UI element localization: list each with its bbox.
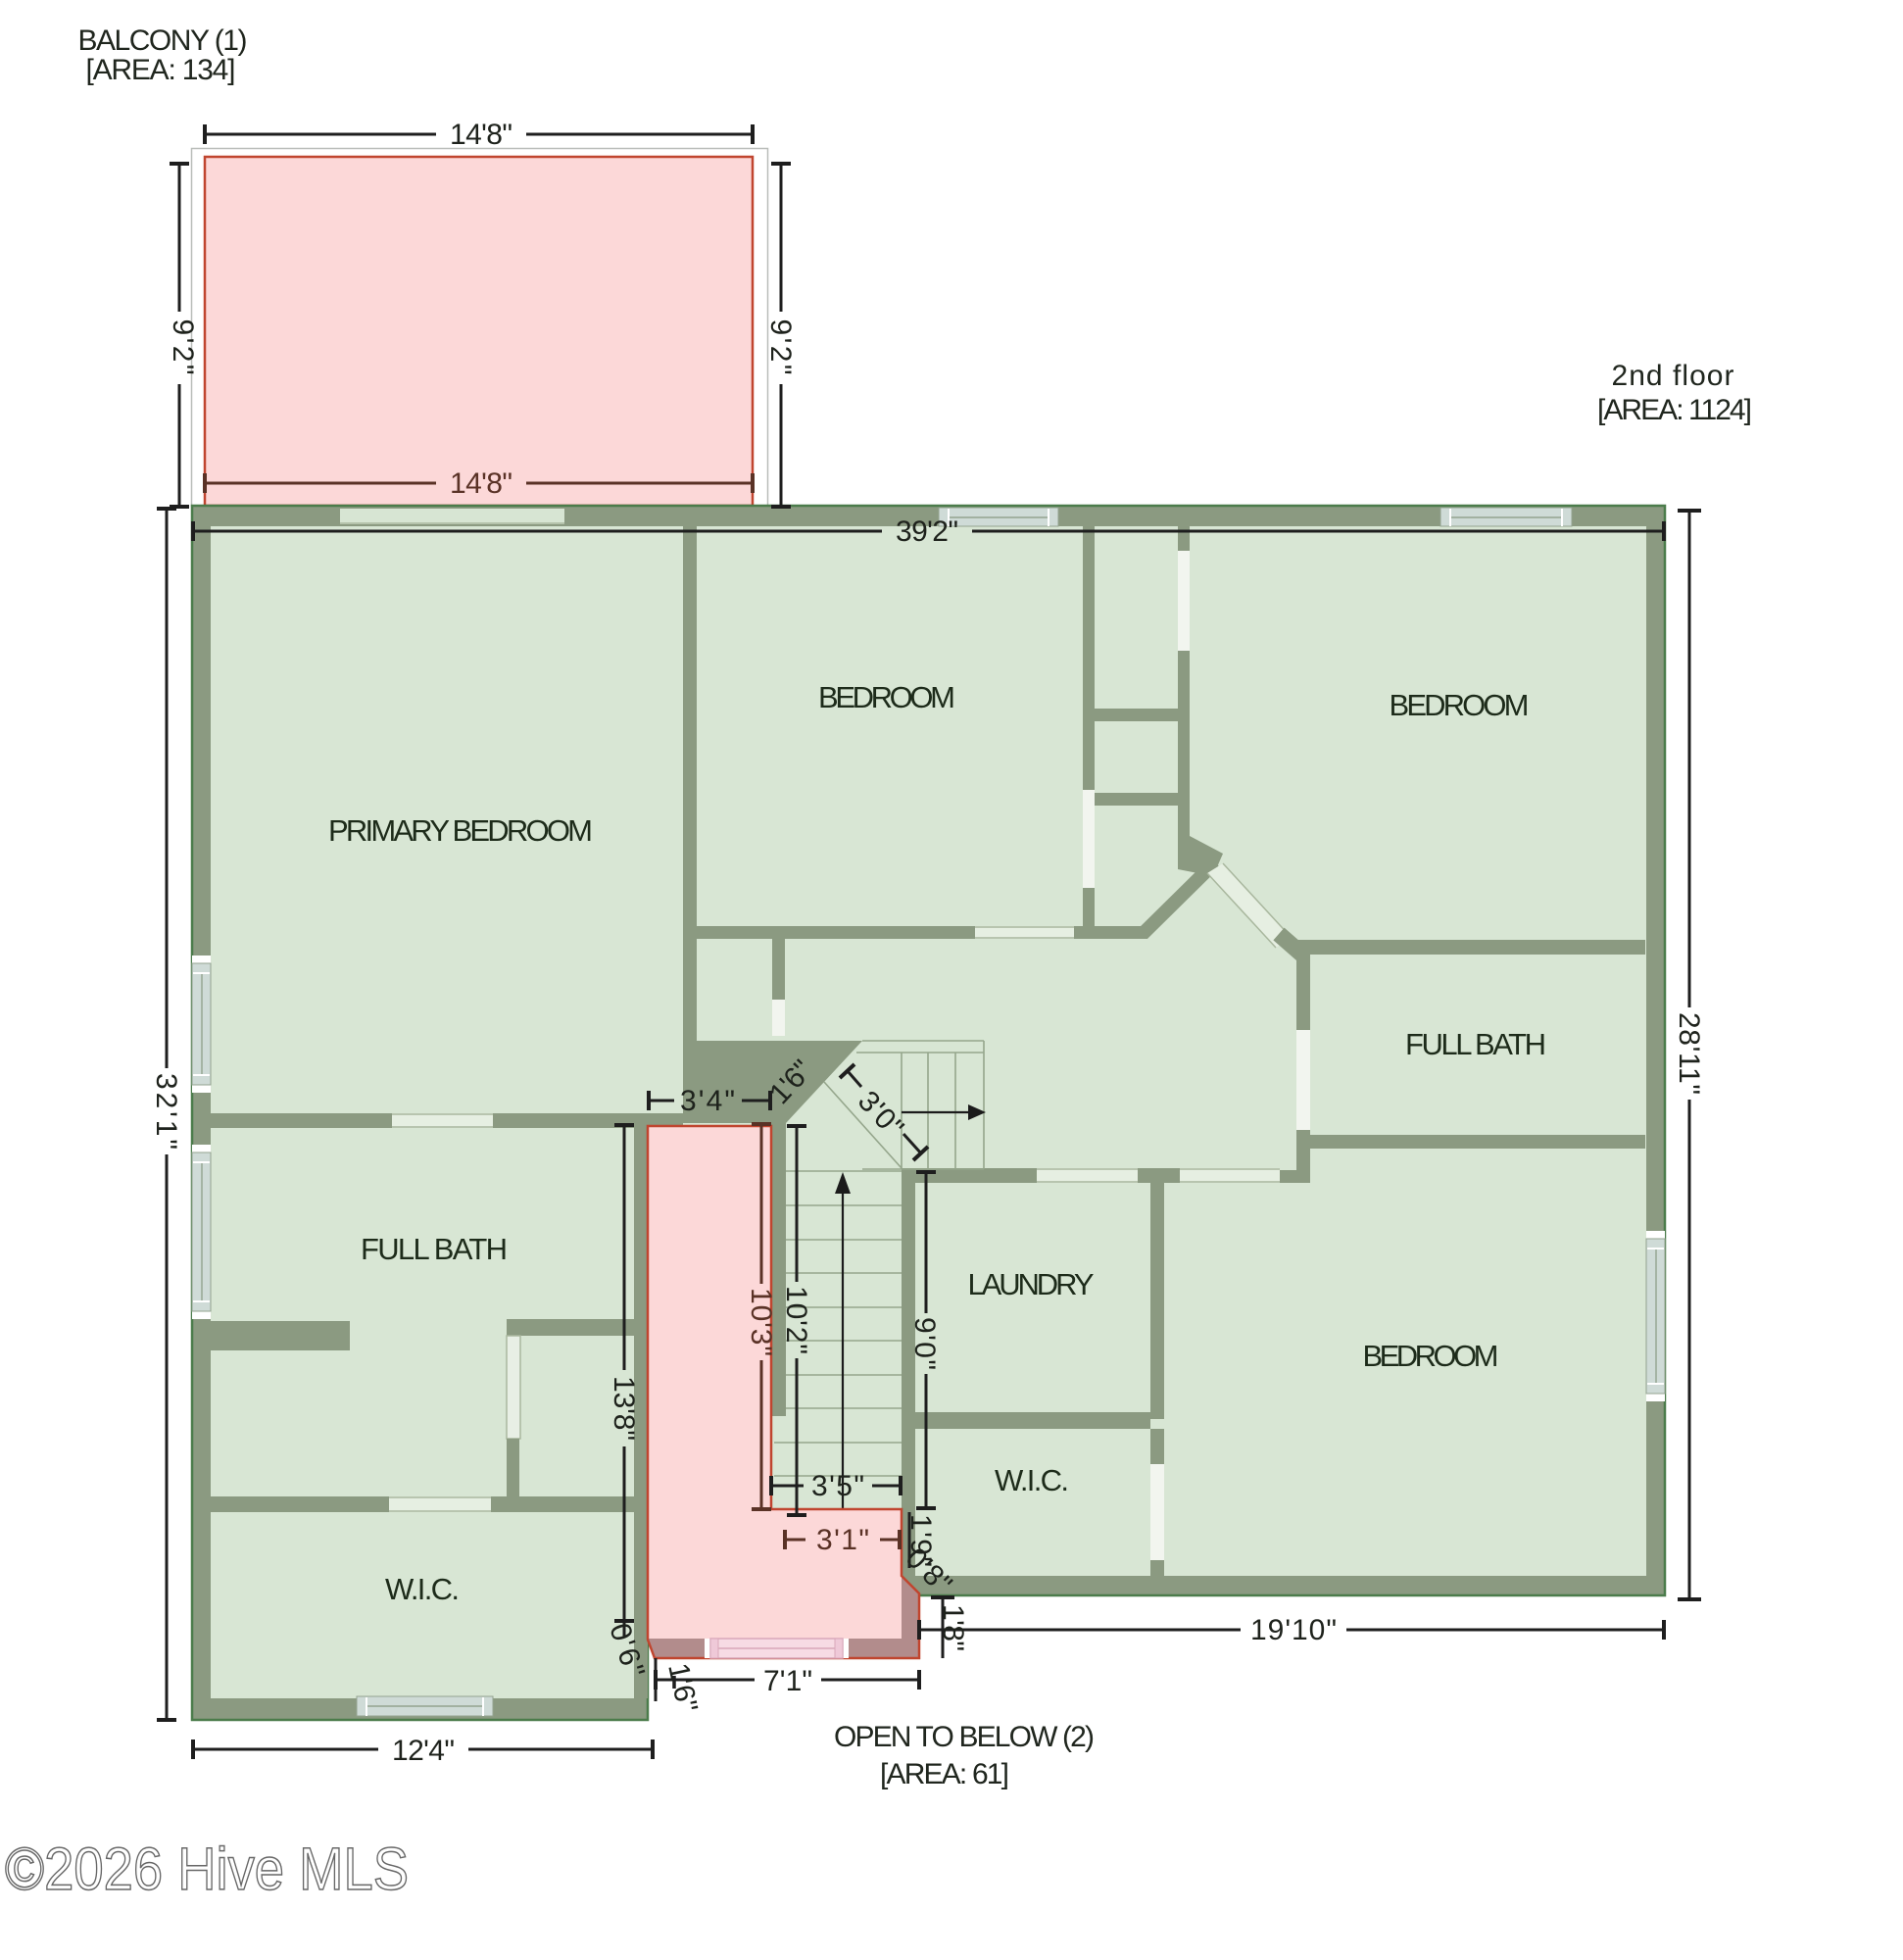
- svg-text:9'2": 9'2": [764, 319, 797, 375]
- svg-text:13'8": 13'8": [608, 1376, 640, 1441]
- svg-text:BEDROOM: BEDROOM: [1363, 1339, 1499, 1373]
- svg-text:FULL BATH: FULL BATH: [1405, 1027, 1546, 1061]
- svg-text:BALCONY (1): BALCONY (1): [78, 24, 248, 57]
- svg-text:[AREA: 61]: [AREA: 61]: [880, 1758, 1009, 1790]
- svg-text:3'1": 3'1": [816, 1524, 869, 1556]
- svg-text:[AREA: 1124]: [AREA: 1124]: [1597, 394, 1752, 426]
- svg-text:9'0": 9'0": [908, 1317, 941, 1370]
- svg-text:3'5": 3'5": [811, 1470, 864, 1502]
- svg-text:BEDROOM: BEDROOM: [818, 680, 955, 714]
- svg-text:39'2": 39'2": [896, 515, 958, 548]
- svg-text:2nd floor: 2nd floor: [1612, 360, 1734, 392]
- svg-text:10'2": 10'2": [780, 1286, 812, 1354]
- svg-text:14'8": 14'8": [450, 467, 512, 500]
- svg-text:W.I.C.: W.I.C.: [385, 1572, 460, 1606]
- svg-text:10'3": 10'3": [745, 1288, 777, 1356]
- svg-text:3'4": 3'4": [680, 1085, 735, 1117]
- svg-text:FULL BATH: FULL BATH: [361, 1232, 508, 1266]
- svg-text:28'11": 28'11": [1673, 1012, 1705, 1095]
- svg-text:W.I.C.: W.I.C.: [995, 1463, 1069, 1497]
- svg-text:9'2": 9'2": [167, 319, 199, 375]
- svg-text:1'8": 1'8": [937, 1604, 969, 1651]
- svg-text:7'1": 7'1": [763, 1665, 812, 1697]
- svg-text:12'4": 12'4": [392, 1735, 455, 1767]
- svg-text:[AREA: 134]: [AREA: 134]: [86, 54, 236, 86]
- svg-text:LAUNDRY: LAUNDRY: [968, 1267, 1095, 1301]
- svg-text:19'10": 19'10": [1250, 1614, 1337, 1646]
- svg-text:©2026 Hive MLS: ©2026 Hive MLS: [5, 1836, 409, 1902]
- svg-text:14'8": 14'8": [450, 119, 512, 151]
- svg-text:PRIMARY BEDROOM: PRIMARY BEDROOM: [328, 813, 593, 848]
- svg-text:OPEN TO BELOW (2): OPEN TO BELOW (2): [834, 1721, 1095, 1753]
- svg-text:BEDROOM: BEDROOM: [1390, 688, 1530, 722]
